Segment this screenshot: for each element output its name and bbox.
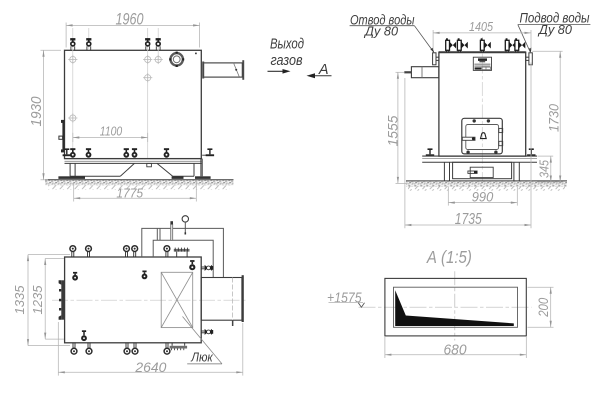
svg-text:А (1:5): А (1:5) [426, 247, 472, 267]
svg-text:345: 345 [537, 160, 551, 178]
svg-text:1930: 1930 [28, 96, 45, 127]
svg-text:1100: 1100 [100, 124, 122, 138]
svg-text:1960: 1960 [116, 10, 144, 29]
svg-text:1405: 1405 [469, 19, 494, 34]
svg-text:1555: 1555 [386, 115, 401, 146]
svg-text:Выход: Выход [270, 36, 304, 53]
svg-text:1730: 1730 [546, 104, 562, 132]
svg-text:+1575: +1575 [327, 290, 362, 306]
svg-text:Люк: Люк [190, 350, 213, 365]
svg-text:680: 680 [444, 342, 467, 358]
svg-text:1235: 1235 [30, 285, 45, 315]
svg-text:990: 990 [472, 188, 494, 204]
svg-text:200: 200 [536, 297, 551, 317]
svg-text:1735: 1735 [455, 211, 482, 228]
svg-text:1775: 1775 [116, 185, 143, 200]
svg-text:2640: 2640 [134, 359, 166, 375]
svg-text:газов: газов [271, 52, 303, 69]
svg-text:1335: 1335 [12, 285, 27, 315]
